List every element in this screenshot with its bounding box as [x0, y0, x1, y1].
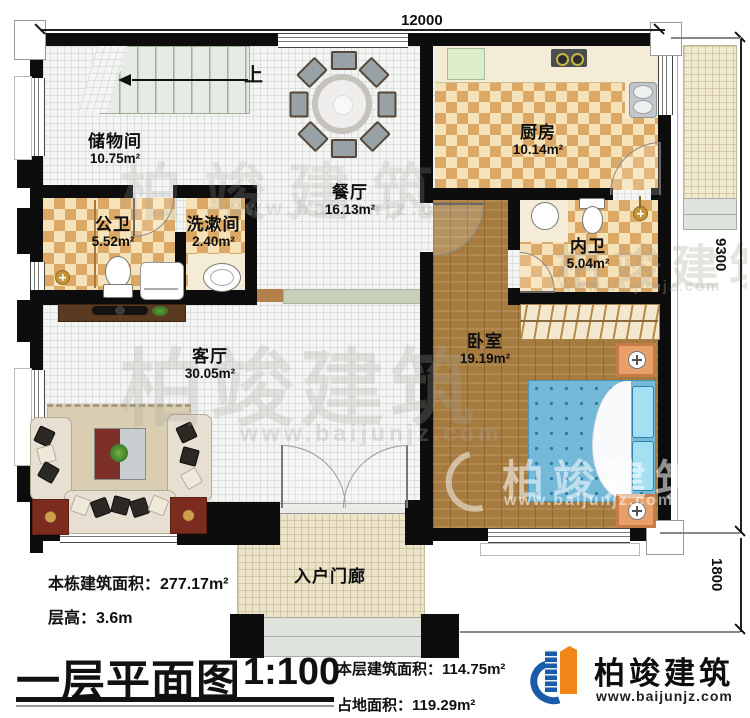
room-name: 餐厅 [300, 183, 400, 202]
floor-mat [170, 497, 207, 534]
stat-building-area: 本栋建筑面积：277.17m² [48, 570, 229, 594]
washing-machine [140, 262, 184, 300]
room-area: 30.05m² [160, 366, 260, 381]
extension-line [460, 631, 740, 633]
extension-line [671, 37, 741, 39]
room-area: 5.04m² [538, 256, 638, 271]
wall-entry-right-block [405, 500, 433, 545]
wall-pier [17, 156, 30, 188]
nightstand-lamp [628, 502, 646, 520]
stairs-up-label: 上 [244, 60, 263, 87]
dining-chair [290, 92, 309, 118]
brand-logo: 柏竣建筑 www.baijunjz.com [528, 640, 746, 714]
room-name: 厨房 [488, 123, 588, 142]
bed-pillow [632, 441, 654, 491]
stat-value: 3.6m [96, 610, 132, 627]
stat-label: 占地面积： [337, 697, 412, 714]
room-area: 10.14m² [488, 142, 588, 157]
room-label-kitchen: 厨房 10.14m² [488, 123, 588, 157]
table-plant [110, 444, 128, 462]
side-terrace-floor [683, 45, 737, 200]
room-area: 5.52m² [63, 234, 163, 249]
wall-hall-innerbath [508, 200, 520, 250]
logo-building-orange [560, 646, 577, 694]
stove-burner [571, 53, 584, 66]
stat-footprint: 占地面积：119.29m² [337, 694, 475, 715]
fridge [447, 48, 485, 80]
threshold-strip [283, 289, 422, 304]
console-plant [152, 306, 168, 316]
kitchen-sink-basin [633, 100, 653, 114]
stat-value: 119.29m² [412, 697, 475, 714]
wall-pier [17, 208, 30, 254]
dining-chair [331, 139, 357, 158]
wardrobe [520, 304, 660, 340]
shower-hose [639, 196, 641, 208]
room-area: 2.40m² [166, 234, 261, 249]
dimension-line-right-upper [740, 38, 742, 533]
dimension-right-lower-value: 1800 [708, 558, 725, 591]
brand-site: www.baijunjz.com [596, 688, 733, 704]
room-name: 公卫 [63, 215, 163, 234]
room-label-storage: 储物间 10.75m² [65, 132, 165, 166]
room-label-inner-bath: 内卫 5.04m² [538, 237, 638, 271]
dimension-line-top [40, 29, 665, 31]
window-right-kitchen [658, 55, 673, 115]
inner-bath-sink [531, 202, 559, 230]
brand-name: 柏竣建筑 [594, 648, 734, 693]
room-label-porch: 入户门廊 [255, 567, 405, 586]
wardrobe-rod [520, 320, 658, 322]
wall-living-bedroom [420, 252, 433, 502]
wall-dining-kitchen [420, 46, 433, 203]
room-label-bedroom: 卧室 19.19m² [435, 332, 535, 366]
room-name: 储物间 [65, 132, 165, 151]
wall-pier [17, 300, 30, 342]
washing-machine-panel [144, 288, 178, 290]
dining-table-center [333, 95, 353, 115]
stat-floor-height: 层高：3.6m [48, 604, 132, 628]
room-name: 入户门廊 [255, 567, 405, 586]
corner-pier [14, 20, 46, 60]
room-label-washroom: 洗漱间 2.40m² [166, 215, 261, 249]
shower-head [633, 206, 648, 221]
dimension-top-value: 12000 [398, 12, 446, 29]
threshold-strip [257, 289, 283, 302]
dining-chair [378, 92, 397, 118]
window-sill [480, 543, 640, 556]
floor-plan-page: 柏竣建筑 www.baijunjz.com 柏竣建筑 www.baijunjz.… [0, 0, 750, 718]
shower-head [55, 270, 70, 285]
tv-lens [115, 306, 125, 315]
nightstand-lamp [628, 351, 646, 369]
stat-label: 层高： [48, 610, 96, 627]
stat-floor-area: 本层建筑面积：114.75m² [337, 658, 505, 679]
room-label-public-bath: 公卫 5.52m² [63, 215, 163, 249]
floor-mat [32, 499, 69, 535]
room-name: 内卫 [538, 237, 638, 256]
porch-step [262, 617, 422, 638]
room-name: 客厅 [160, 347, 260, 366]
stat-value: 277.17m² [160, 576, 229, 593]
stair-arrow-head [118, 74, 131, 86]
toilet-tank [103, 284, 133, 298]
dimension-line-right-lower [740, 538, 742, 632]
room-name: 卧室 [435, 332, 535, 351]
stove-burner [556, 53, 569, 66]
exterior-line [677, 46, 678, 541]
room-label-dining: 餐厅 16.13m² [300, 183, 400, 217]
logo-building-blue [545, 650, 557, 692]
kitchen-sink-basin [633, 85, 653, 99]
terrace-step [683, 214, 737, 230]
stat-label: 本栋建筑面积： [48, 576, 160, 593]
wall-bath-top-right [173, 185, 245, 198]
room-area: 19.19m² [435, 351, 535, 366]
brand-logo-icon [530, 644, 588, 710]
window-bedroom-south [488, 528, 630, 543]
window-left-storage [30, 78, 45, 156]
dining-chair [331, 51, 357, 70]
washroom-sink-inner [210, 269, 234, 286]
bed-pillow [632, 386, 654, 438]
stat-label: 本层建筑面积： [337, 661, 442, 678]
stair-arrow-line [132, 79, 248, 81]
title-rule-thick [16, 697, 334, 702]
room-area: 16.13m² [300, 202, 400, 217]
dimension-right-upper-value: 9300 [712, 238, 729, 271]
window-top [278, 33, 408, 48]
stat-value: 114.75m² [442, 661, 505, 678]
scale-label: 1:100 [243, 651, 340, 694]
wall-pier [17, 466, 30, 502]
wall-bath-top-left [30, 185, 133, 198]
title-rule-thin [16, 705, 334, 707]
room-name: 洗漱间 [166, 215, 261, 234]
window-sill [14, 76, 32, 160]
extension-line [660, 532, 740, 534]
wall-right [658, 46, 671, 541]
porch-pillar-right [421, 614, 459, 658]
room-label-living: 客厅 30.05m² [160, 347, 260, 381]
toilet [582, 206, 603, 234]
room-area: 10.75m² [65, 151, 165, 166]
